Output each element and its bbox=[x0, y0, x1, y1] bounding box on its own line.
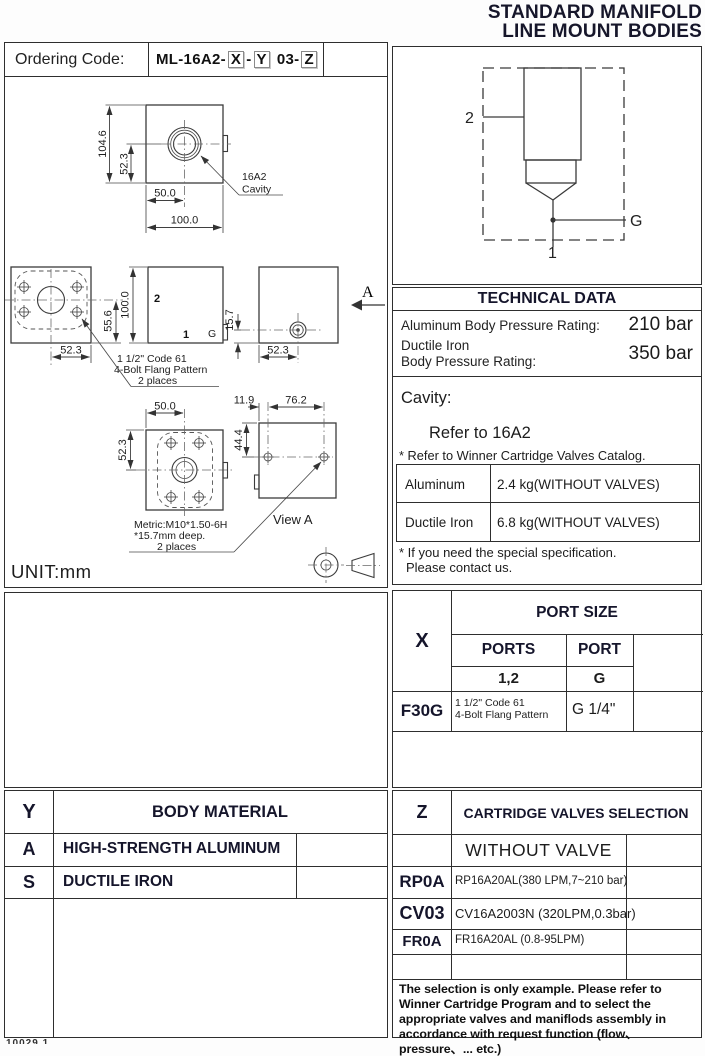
port-size-header: PORT SIZE bbox=[451, 591, 703, 634]
schematic-port-g: G bbox=[630, 213, 642, 230]
unit-label: UNIT:mm bbox=[11, 561, 92, 582]
front-port-1-label: 1 bbox=[183, 329, 189, 341]
dim-104-6: 104.6 bbox=[97, 130, 109, 158]
port-row-ports: 1 1/2" Code 61 4-Bolt Flang Pattern bbox=[455, 697, 565, 721]
material-row-key: A bbox=[5, 833, 53, 866]
weight-material: Aluminum bbox=[405, 465, 465, 503]
flange-note-line3: 2 places bbox=[138, 375, 177, 387]
code-z-box: Z bbox=[301, 51, 316, 68]
cavity-schematic: 2 G 1 bbox=[393, 47, 701, 284]
aluminum-pressure-label: Aluminum Body Pressure Rating: bbox=[401, 318, 600, 333]
code-dash: - bbox=[246, 51, 251, 68]
front-port-2-label: 2 bbox=[154, 293, 160, 305]
cavity-callout-line1: 16A2 bbox=[242, 171, 267, 183]
port-size-key: X bbox=[393, 591, 451, 691]
page-title-line2: LINE MOUNT BODIES bbox=[282, 22, 702, 41]
weight-table: Aluminum 2.4 kg(WITHOUT VALVES) Ductile … bbox=[396, 464, 700, 542]
port-column-header: PORT bbox=[566, 634, 633, 666]
valve-row-key: FR0A bbox=[393, 929, 451, 954]
valve-row-label: FR16A20AL (0.8-95LPM) bbox=[455, 934, 584, 946]
valve-row-key: RP0A bbox=[393, 866, 451, 898]
dim-100-0-front: 100.0 bbox=[120, 291, 132, 319]
ductile-pressure-label-1: Ductile Iron bbox=[401, 338, 469, 353]
weight-row-aluminum: Aluminum 2.4 kg(WITHOUT VALVES) bbox=[397, 465, 699, 503]
dim-50-0-top: 50.0 bbox=[154, 188, 175, 200]
material-row-label: DUCTILE IRON bbox=[63, 873, 173, 891]
port-column-sub: G bbox=[566, 666, 633, 691]
without-valve-cell: WITHOUT VALVE bbox=[451, 834, 626, 866]
dim-44-4: 44.4 bbox=[233, 429, 245, 450]
schematic-port-1: 1 bbox=[548, 245, 557, 262]
footer-partial-text: 10029.1 bbox=[6, 1039, 206, 1044]
port-size-table: X PORT SIZE PORTS PORT 1,2 G F30G 1 1/2"… bbox=[392, 590, 702, 788]
ports-column-header: PORTS bbox=[451, 634, 566, 666]
cavity-value: Refer to 16A2 bbox=[429, 424, 531, 443]
weight-value: 2.4 kg(WITHOUT VALVES) bbox=[497, 465, 660, 503]
weight-row-ductile: Ductile Iron 6.8 kg(WITHOUT VALVES) bbox=[397, 503, 699, 541]
ordering-code-label: Ordering Code: bbox=[15, 43, 124, 76]
code-prefix: ML-16A2- bbox=[156, 51, 226, 68]
body-material-header: BODY MATERIAL bbox=[53, 791, 387, 833]
metric-note-line3: 2 places bbox=[157, 541, 196, 553]
port-row-ports-line2: 4-Bolt Flang Pattern bbox=[455, 709, 565, 721]
dim-15-7: 15.7 bbox=[224, 309, 236, 330]
view-a-label: View A bbox=[273, 512, 313, 527]
valve-row-label: RP16A20AL(380 LPM,7~210 bar) bbox=[455, 875, 627, 887]
cavity-label: Cavity: bbox=[401, 389, 451, 408]
ductile-pressure-label-2: Body Pressure Rating: bbox=[401, 354, 536, 369]
schematic-port-2: 2 bbox=[465, 110, 474, 127]
cartridge-selection-table: Z CARTRIDGE VALVES SELECTION WITHOUT VAL… bbox=[392, 790, 702, 1038]
flange-view-drawing: 55.6 52.3 1 1/2" Code 61 4-Bolt Flang Pa… bbox=[5, 267, 219, 387]
dim-52-3-side: 52.3 bbox=[267, 345, 288, 357]
pressure-ratings: Aluminum Body Pressure Rating: 210 bar D… bbox=[393, 311, 701, 377]
body-material-key: Y bbox=[5, 791, 53, 833]
dim-52-3-flange: 52.3 bbox=[60, 345, 81, 357]
dim-100-0-top: 100.0 bbox=[171, 215, 199, 227]
side-view-drawing: 15.7 52.3 A bbox=[224, 267, 385, 363]
valve-row-label: CV16A2003N (320LPM,0.3bar) bbox=[455, 906, 636, 921]
cartridge-note: The selection is only example. Please re… bbox=[393, 979, 703, 1039]
code-x-box: X bbox=[228, 51, 244, 68]
port-row-ports-line1: 1 1/2" Code 61 bbox=[455, 697, 565, 709]
view-direction-label: A bbox=[362, 284, 374, 301]
dim-76-2: 76.2 bbox=[285, 395, 306, 407]
ordering-code-value: ML-16A2-X-Y03-Z bbox=[156, 43, 319, 76]
cavity-callout-line2: Cavity bbox=[242, 184, 272, 196]
aluminum-pressure-value: 210 bar bbox=[629, 314, 693, 336]
material-row-key: S bbox=[5, 866, 53, 898]
ordering-code-row: Ordering Code: ML-16A2-X-Y03-Z bbox=[5, 43, 387, 77]
view-direction-arrow-icon bbox=[351, 300, 362, 311]
technical-data-header: TECHNICAL DATA bbox=[393, 288, 701, 311]
schematic-panel: 2 G 1 bbox=[392, 46, 702, 285]
dim-11-9: 11.9 bbox=[234, 395, 255, 407]
weight-material: Ductile Iron bbox=[405, 503, 473, 541]
dim-55-6: 55.6 bbox=[103, 310, 115, 331]
dim-52-3-bottom: 52.3 bbox=[117, 439, 129, 460]
technical-data-panel: TECHNICAL DATA Aluminum Body Pressure Ra… bbox=[392, 287, 702, 585]
weight-value: 6.8 kg(WITHOUT VALVES) bbox=[497, 503, 660, 541]
page-title: STANDARD MANIFOLD LINE MOUNT BODIES bbox=[282, 3, 702, 41]
cavity-note: * Refer to Winner Cartridge Valves Catal… bbox=[399, 448, 646, 463]
front-view-drawing: 2 1 G 100.0 bbox=[120, 267, 228, 343]
body-material-table: Y BODY MATERIAL A HIGH-STRENGTH ALUMINUM… bbox=[4, 790, 388, 1038]
page-title-line1: STANDARD MANIFOLD bbox=[282, 3, 702, 22]
dim-50-0-bottom: 50.0 bbox=[154, 401, 175, 413]
ordering-divider-2 bbox=[323, 43, 324, 76]
top-view-drawing: 104.6 52.3 50.0 100.0 16A2 Cavity bbox=[97, 105, 283, 233]
special-note-line1: * If you need the special specification. bbox=[399, 545, 617, 560]
material-row-label: HIGH-STRENGTH ALUMINUM bbox=[63, 840, 280, 858]
valve-row-key: CV03 bbox=[393, 898, 451, 929]
drawing-panel: Ordering Code: ML-16A2-X-Y03-Z 10 bbox=[4, 42, 388, 588]
front-port-g-label: G bbox=[208, 328, 216, 340]
dim-52-3-top: 52.3 bbox=[119, 153, 131, 174]
port-row-g: G 1/4" bbox=[572, 701, 615, 719]
ductile-pressure-value: 350 bar bbox=[629, 343, 693, 365]
cartridge-key: Z bbox=[393, 791, 451, 834]
port-row-key: F30G bbox=[393, 691, 451, 731]
ordering-divider-1 bbox=[148, 43, 149, 76]
cartridge-header: CARTRIDGE VALVES SELECTION bbox=[451, 791, 701, 834]
projection-symbol-icon bbox=[308, 547, 380, 583]
empty-panel bbox=[4, 592, 388, 788]
technical-drawing: 104.6 52.3 50.0 100.0 16A2 Cavity bbox=[5, 76, 387, 586]
view-a-drawing: 11.9 76.2 44.4 View A bbox=[233, 395, 336, 528]
code-y-box: Y bbox=[254, 51, 270, 68]
code-mid: 03- bbox=[277, 51, 300, 68]
special-note-line2: Please contact us. bbox=[406, 560, 512, 575]
ports-column-sub: 1,2 bbox=[451, 666, 566, 691]
